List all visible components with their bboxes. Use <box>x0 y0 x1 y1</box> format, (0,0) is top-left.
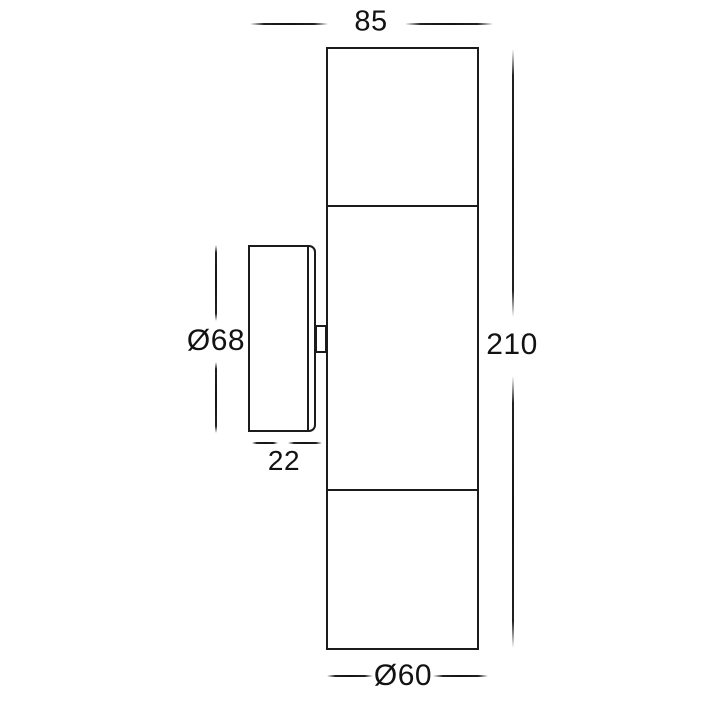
dim-label-overall-height: 210 <box>486 330 538 360</box>
technical-drawing-canvas: 85 210 Ø68 22 Ø60 <box>0 0 720 720</box>
mount-plate-edge-line <box>307 246 309 431</box>
mount-plate-outline <box>248 245 316 432</box>
fixture-body-outline <box>326 47 479 650</box>
dim-line-base-diameter-right <box>433 675 488 677</box>
dim-label-plate-diameter: Ø68 <box>187 326 245 356</box>
dim-line-base-diameter-left <box>327 675 373 677</box>
body-section-line-upper <box>328 205 477 207</box>
dim-line-top-width-left <box>250 23 328 25</box>
dim-line-plate-depth-right <box>288 442 322 444</box>
dim-line-height-lower <box>512 376 514 648</box>
dim-label-plate-depth: 22 <box>268 447 300 475</box>
dim-label-base-diameter: Ø60 <box>374 661 432 691</box>
dim-line-top-width-right <box>405 23 493 25</box>
mount-tab-outline <box>315 325 327 353</box>
dim-line-plate-depth-left <box>252 442 278 444</box>
dim-label-top-width: 85 <box>354 8 387 37</box>
dim-line-height-upper <box>512 49 514 317</box>
dim-line-plate-diameter-lower <box>215 362 217 433</box>
body-section-line-lower <box>328 489 477 491</box>
dim-line-plate-diameter-upper <box>215 245 217 321</box>
